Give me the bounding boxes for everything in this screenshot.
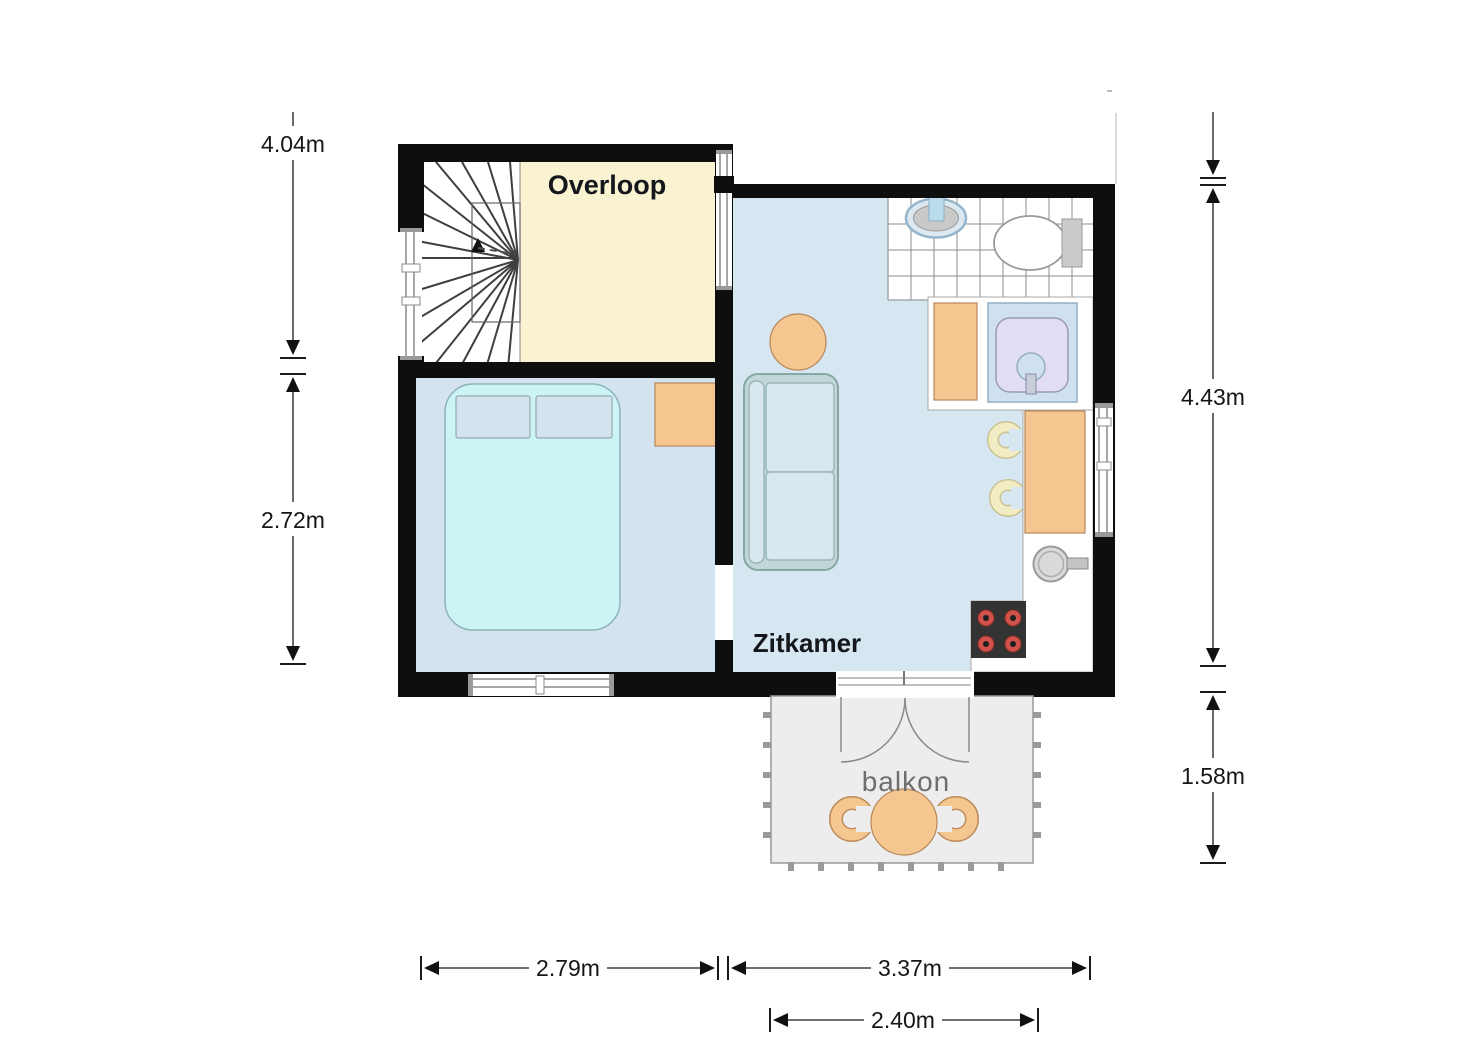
- sofa: [744, 374, 838, 570]
- dim-label: 2.72m: [261, 507, 325, 533]
- sink-tap: [929, 197, 944, 221]
- window-middle-wall: [714, 150, 734, 290]
- dim-label: 1.58m: [1181, 763, 1245, 789]
- dim-left-upper: 4.04m: [256, 112, 330, 358]
- balkon-label: balkon: [862, 766, 951, 797]
- wall-divider: [398, 362, 733, 378]
- wall-top-overloop: [398, 144, 732, 162]
- shower-area: [928, 297, 1093, 410]
- dim-label: 4.04m: [261, 131, 325, 157]
- window-bedroom: [468, 674, 614, 696]
- pillow-left: [456, 396, 530, 438]
- sofa-cushion-bottom: [766, 472, 834, 560]
- floorplan-svg: 4.04m 2.72m 4.43m: [0, 0, 1484, 1050]
- dim-bottom-right: 3.37m: [728, 950, 1090, 986]
- toilet: [994, 216, 1082, 270]
- overloop-label: Overloop: [548, 170, 667, 200]
- window-right: [1095, 403, 1113, 537]
- dim-label: 2.79m: [536, 955, 600, 981]
- sofa-cushion-top: [766, 383, 834, 472]
- bathroom-sink: [906, 197, 966, 238]
- balcony-table: [871, 789, 937, 855]
- pillow-right: [536, 396, 612, 438]
- dim-left-lower: 2.72m: [256, 374, 330, 664]
- zitkamer-label: Zitkamer: [753, 628, 861, 658]
- dim-right-upper: 4.43m: [1176, 112, 1252, 666]
- wall-top-zitkamer: [715, 184, 1115, 198]
- nightstand: [655, 383, 718, 446]
- faucet: [1067, 558, 1088, 569]
- kitchen-counter-top: [1025, 411, 1085, 533]
- toilet-cistern: [1062, 219, 1082, 267]
- dim-bottom-left: 2.79m: [421, 950, 718, 986]
- sofa-backrest: [749, 381, 764, 563]
- floorplan-canvas: 4.04m 2.72m 4.43m: [0, 0, 1484, 1050]
- wall-left-bedroom: [398, 362, 416, 697]
- dim-label: 3.37m: [878, 955, 942, 981]
- wall-left-upper: [398, 144, 424, 232]
- dim-label: 2.40m: [871, 1007, 935, 1033]
- dim-right-lower: 1.58m: [1176, 692, 1252, 863]
- dim-label: 4.43m: [1181, 384, 1245, 410]
- round-table: [770, 314, 826, 370]
- dim-bottom-balcony: 2.40m: [770, 1002, 1038, 1038]
- bathroom-cabinet: [934, 303, 977, 400]
- artifact-dot: [1107, 90, 1112, 92]
- window-left: [400, 228, 422, 360]
- stove: [971, 601, 1026, 658]
- shower: [988, 303, 1077, 402]
- double-bed: [445, 384, 620, 630]
- door-opening-bedroom: [715, 565, 733, 640]
